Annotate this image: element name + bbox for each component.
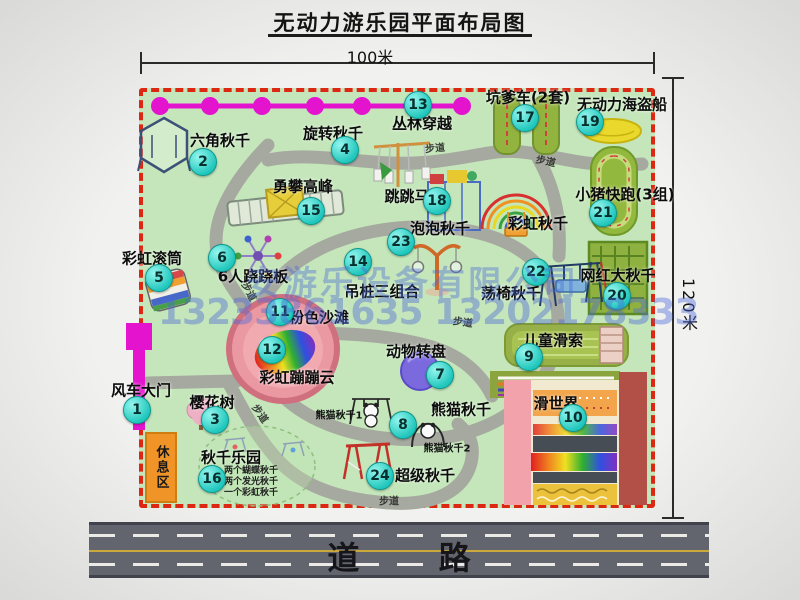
badge-9: 9 (515, 343, 543, 371)
label-7: 动物转盘 (386, 341, 446, 362)
playground-layout-page: 无动力游乐园平面布局图 100米 120米 (0, 0, 800, 600)
title-underline (268, 34, 532, 37)
badge-24: 24 (366, 462, 394, 490)
label-15: 勇攀高峰 (273, 176, 333, 197)
label-rainbow-swing: 彩虹秋千 (508, 213, 568, 234)
road: 道 路 (89, 522, 709, 578)
badge-6: 6 (208, 244, 236, 272)
badge-16: 16 (198, 465, 226, 493)
panda-swing-1-label: 熊猫秋千1 (316, 407, 363, 422)
badge-4: 4 (331, 136, 359, 164)
badge-5: 5 (145, 264, 173, 292)
swing-park-note-line: 两个发光秋千 (224, 477, 278, 488)
label-24: 超级秋千 (395, 465, 455, 486)
badge-13: 13 (404, 91, 432, 119)
badge-19: 19 (576, 108, 604, 136)
label-21: 小猪快跑(3组) (575, 184, 674, 205)
badge-15: 15 (297, 197, 325, 225)
badge-7: 7 (426, 361, 454, 389)
badge-3: 3 (201, 406, 229, 434)
width-dimension-tick-left (140, 52, 142, 74)
swing-park-note-line: 一个彩虹秋千 (224, 488, 278, 499)
rest-area-box: 休息区 (145, 432, 177, 503)
panda-swing-2-label: 熊猫秋千2 (424, 440, 471, 455)
road-label: 道 路 (89, 533, 709, 579)
walkway-label: 步道 (379, 493, 399, 508)
badge-8: 8 (389, 411, 417, 439)
page-title: 无动力游乐园平面布局图 (0, 7, 800, 37)
walkway-label: 步道 (424, 139, 445, 156)
badge-23: 23 (387, 228, 415, 256)
height-dimension-tick-bottom (662, 517, 684, 519)
badge-17: 17 (511, 104, 539, 132)
width-dimension-tick-right (653, 52, 655, 74)
badge-21: 21 (589, 199, 617, 227)
height-dimension-tick-top (662, 77, 684, 79)
swing-park-notes: 两个蝴蝶秋千两个发光秋千一个彩虹秋千 (224, 466, 278, 499)
watermark-phone: 13233861635 13202178333 (158, 292, 699, 333)
badge-18: 18 (423, 187, 451, 215)
label-23: 泡泡秋千 (410, 218, 470, 239)
badge-1: 1 (123, 396, 151, 424)
badge-12: 12 (258, 336, 286, 364)
width-dimension-label: 100米 (300, 44, 440, 68)
label-8: 熊猫秋千 (431, 399, 491, 420)
rest-area-label: 休息区 (152, 445, 171, 490)
label-12: 彩虹蹦蹦云 (259, 367, 334, 388)
swing-park-note-line: 两个蝴蝶秋千 (224, 466, 278, 477)
badge-10: 10 (559, 404, 587, 432)
badge-2: 2 (189, 148, 217, 176)
